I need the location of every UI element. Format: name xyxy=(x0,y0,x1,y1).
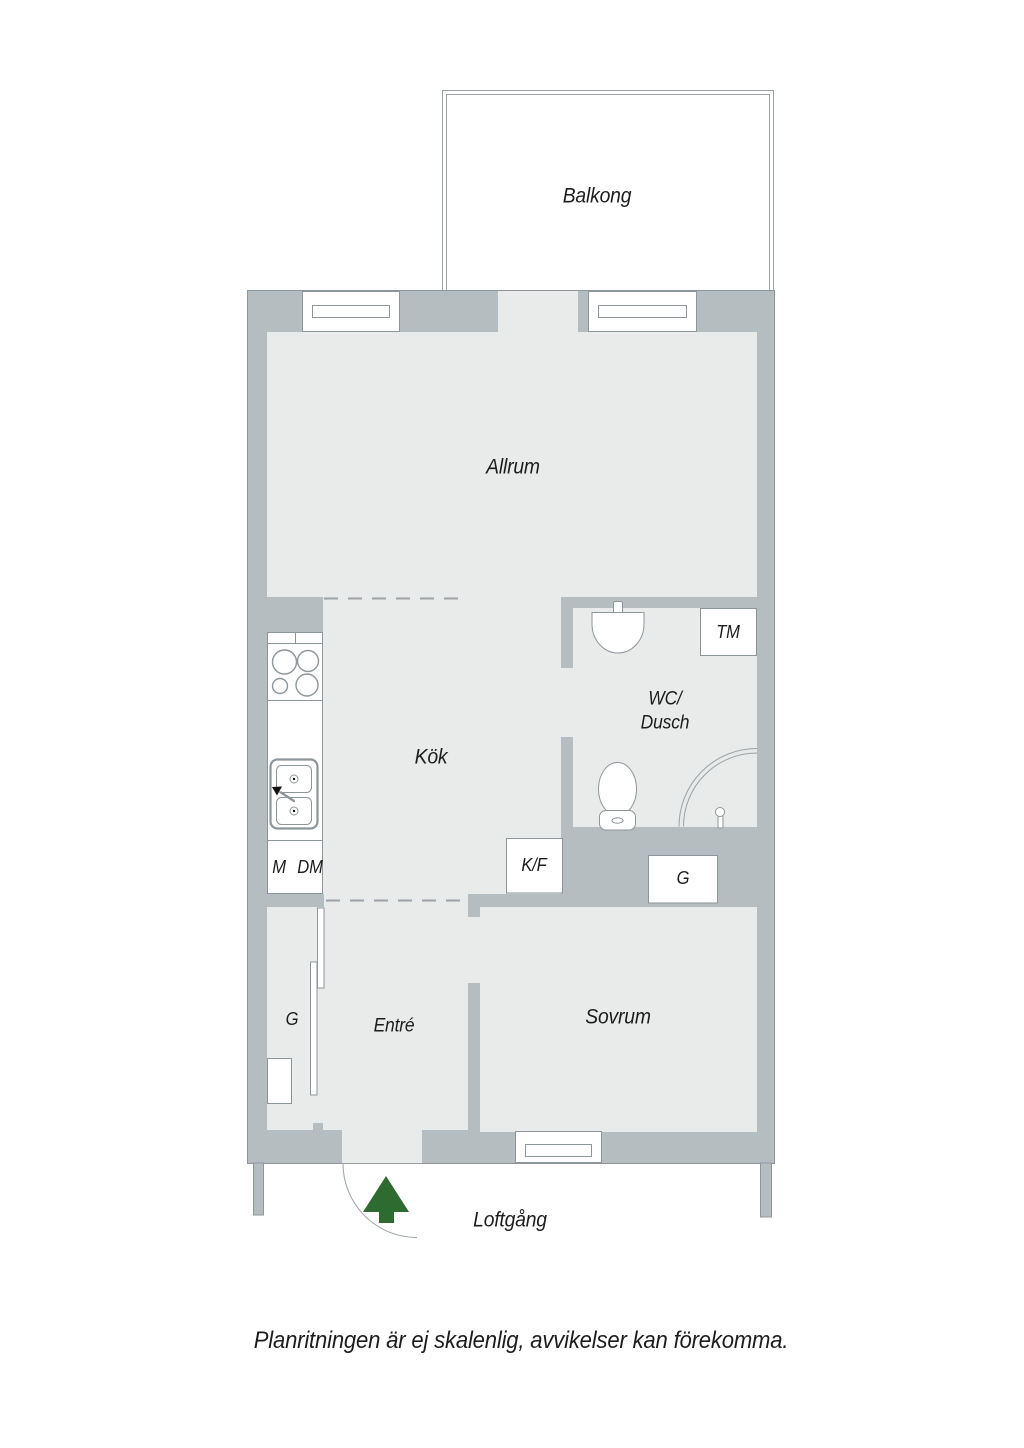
kitchen-sink-icon xyxy=(271,760,318,829)
bedroom-label: Sovrum xyxy=(585,1005,650,1028)
hall-label: Entré xyxy=(374,1017,415,1038)
hall-wardrobe-label: G xyxy=(286,1010,299,1030)
kitchen-counter xyxy=(268,633,323,894)
door-jamb-stub xyxy=(313,1123,323,1131)
bathroom-label-line2: Dusch xyxy=(641,714,690,735)
living-room-window-right xyxy=(589,292,697,332)
walkway-label: Loftgång xyxy=(473,1208,547,1231)
bathroom-label-line1: WC/ xyxy=(648,690,681,711)
bathroom-door-opening xyxy=(561,668,573,737)
entrance-door-opening xyxy=(342,1130,422,1164)
floor-plan-page: Balkong Allrum Kök WC/ Dusch TM M DM K/F… xyxy=(0,0,1024,1448)
disclaimer-text: Planritningen är ej skalenlig, avvikelse… xyxy=(254,1328,789,1354)
entrance-door xyxy=(342,1164,422,1238)
hall-bedroom-opening xyxy=(468,917,480,983)
living-room-window-left xyxy=(303,292,400,332)
walkway-wall-stub-right xyxy=(761,1163,772,1217)
fridge-freezer-label: K/F xyxy=(521,856,546,876)
living-room-label: Allrum xyxy=(486,455,540,478)
balcony-door-opening xyxy=(498,291,578,332)
toilet-icon xyxy=(599,763,637,831)
balcony-label: Balkong xyxy=(563,184,632,207)
washing-machine-label: TM xyxy=(716,623,740,643)
microwave-label: M xyxy=(272,858,286,878)
dishwasher-label: DM xyxy=(297,858,322,878)
kitchen-label: Kök xyxy=(415,745,448,768)
entrance-arrow-icon xyxy=(363,1176,409,1223)
walkway-wall-stub-left xyxy=(254,1163,264,1215)
hall-cabinet-box xyxy=(268,1059,292,1104)
bedroom-wardrobe-label: G xyxy=(677,869,690,889)
bedroom-window xyxy=(516,1132,602,1163)
